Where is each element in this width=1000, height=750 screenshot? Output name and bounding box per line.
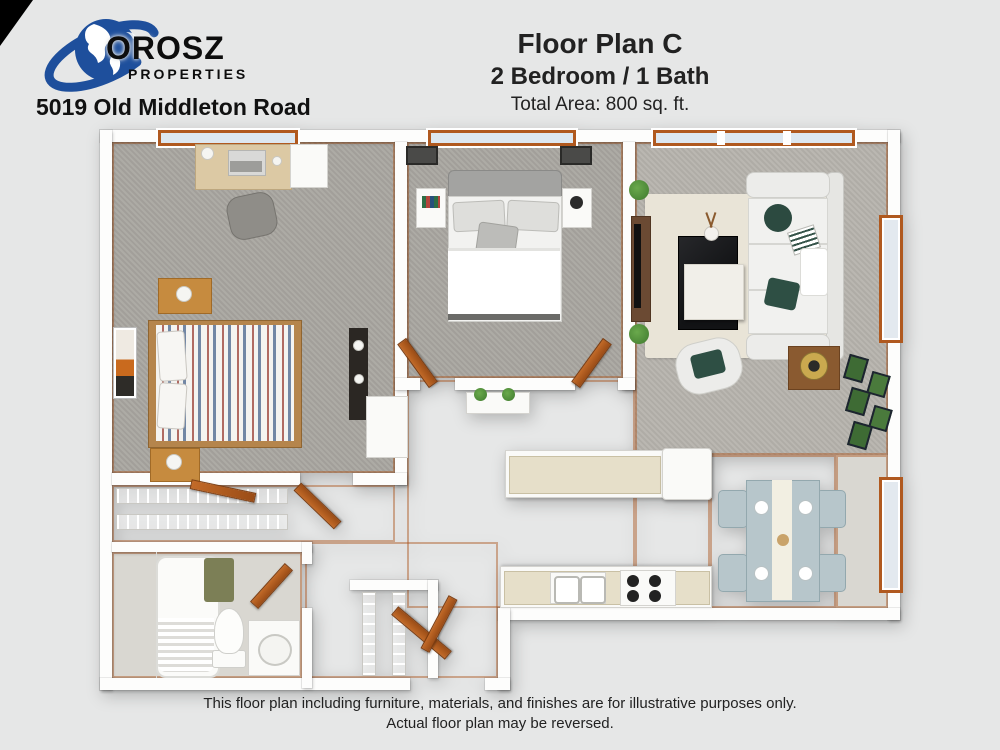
wall-bedroom2-south-c <box>618 378 635 390</box>
wall-entry-closet-north <box>350 580 438 590</box>
nightstand <box>416 188 446 228</box>
plan-title: Floor Plan C <box>350 28 850 60</box>
countertop <box>509 456 661 494</box>
bed2-blanket <box>448 248 560 319</box>
table-lamp <box>800 352 828 380</box>
wire-shelf <box>392 592 406 676</box>
plant <box>474 388 487 401</box>
skylight-mullion <box>717 131 725 145</box>
wall-bedroom2-south-a <box>395 378 420 390</box>
burner <box>649 575 661 587</box>
wall-art <box>114 328 136 398</box>
orosz-properties-logo: OROSZ PROPERTIES <box>24 6 284 98</box>
window-living <box>882 218 900 340</box>
laptop-keyboard <box>230 161 262 172</box>
plant <box>629 180 649 200</box>
shower-curtain <box>158 618 214 672</box>
bath-mat <box>204 558 234 602</box>
bed2-headboard <box>448 170 562 198</box>
nightstand-books <box>422 196 440 208</box>
wall-art <box>560 146 592 165</box>
wire-shelf <box>116 514 288 530</box>
logo-text: OROSZ <box>106 30 225 67</box>
window-dining <box>882 480 900 590</box>
burner <box>627 590 639 602</box>
nightstand-lamp <box>176 286 192 302</box>
sofa-throw <box>800 248 828 296</box>
bed2-footboard <box>448 314 560 320</box>
sink-basin <box>580 576 606 604</box>
disclaimer-line2: Actual floor plan may be reversed. <box>0 714 1000 734</box>
skylight-bedroom2 <box>428 130 576 146</box>
utility-cabinet <box>366 396 408 458</box>
countertop <box>504 571 710 605</box>
floor-plan-rendering <box>100 130 900 690</box>
plan-area: Total Area: 800 sq. ft. <box>350 94 850 116</box>
property-address: 5019 Old Middleton Road <box>36 94 311 121</box>
desk-dresser <box>290 144 328 188</box>
coffee-table-white-marble <box>684 264 744 320</box>
shelf-decor <box>354 374 364 384</box>
bed1-pillow <box>156 382 187 430</box>
sofa-back <box>826 172 844 360</box>
title-block: Floor Plan C 2 Bedroom / 1 Bath Total Ar… <box>350 28 850 116</box>
wall-bathroom-east-b <box>302 608 312 688</box>
skylight-mullion <box>783 131 791 145</box>
wall-bedroom1-south-b <box>353 473 407 485</box>
dining-chair <box>816 490 846 528</box>
vase <box>704 226 719 241</box>
wall-art <box>406 146 438 165</box>
dining-chair <box>816 554 846 592</box>
burner <box>649 590 661 602</box>
wire-shelf <box>362 592 376 676</box>
nightstand-lamp <box>570 196 583 209</box>
burner <box>627 575 639 587</box>
dining-chair <box>718 554 748 592</box>
logo-subtext: PROPERTIES <box>128 66 248 82</box>
vanity-sink <box>258 634 292 666</box>
plant <box>629 324 649 344</box>
wall-bathroom-east-a <box>302 542 312 564</box>
shower-tile-wall <box>112 552 157 678</box>
wall-bottom-right <box>498 608 900 620</box>
wall-left <box>100 130 112 690</box>
shelf-decor <box>353 340 364 351</box>
place-setting <box>754 566 769 581</box>
wall-bathroom-north <box>112 542 312 552</box>
desk-mug <box>272 156 282 166</box>
place-setting <box>754 500 769 515</box>
nightstand-lamp <box>166 454 182 470</box>
place-setting <box>798 566 813 581</box>
plant <box>502 388 515 401</box>
dining-chair <box>718 490 748 528</box>
bed1-pillow <box>156 330 187 382</box>
green-round-pillow <box>764 204 792 232</box>
skylight-living <box>653 130 855 146</box>
sink-basin <box>554 576 580 604</box>
tv <box>634 224 641 308</box>
wall-bottom-left-b <box>485 678 510 690</box>
toilet <box>214 608 244 654</box>
centerpiece <box>777 534 789 546</box>
wall-bedroom2-south-b <box>455 378 575 390</box>
place-setting <box>798 500 813 515</box>
disclaimer-line1: This floor plan including furniture, mat… <box>0 694 1000 714</box>
refrigerator <box>662 448 712 500</box>
disclaimer: This floor plan including furniture, mat… <box>0 694 1000 734</box>
sofa-armrest <box>746 172 830 198</box>
plan-subtitle: 2 Bedroom / 1 Bath <box>350 63 850 91</box>
wall-bottom-left-a <box>100 678 410 690</box>
desk-lamp <box>201 147 214 160</box>
